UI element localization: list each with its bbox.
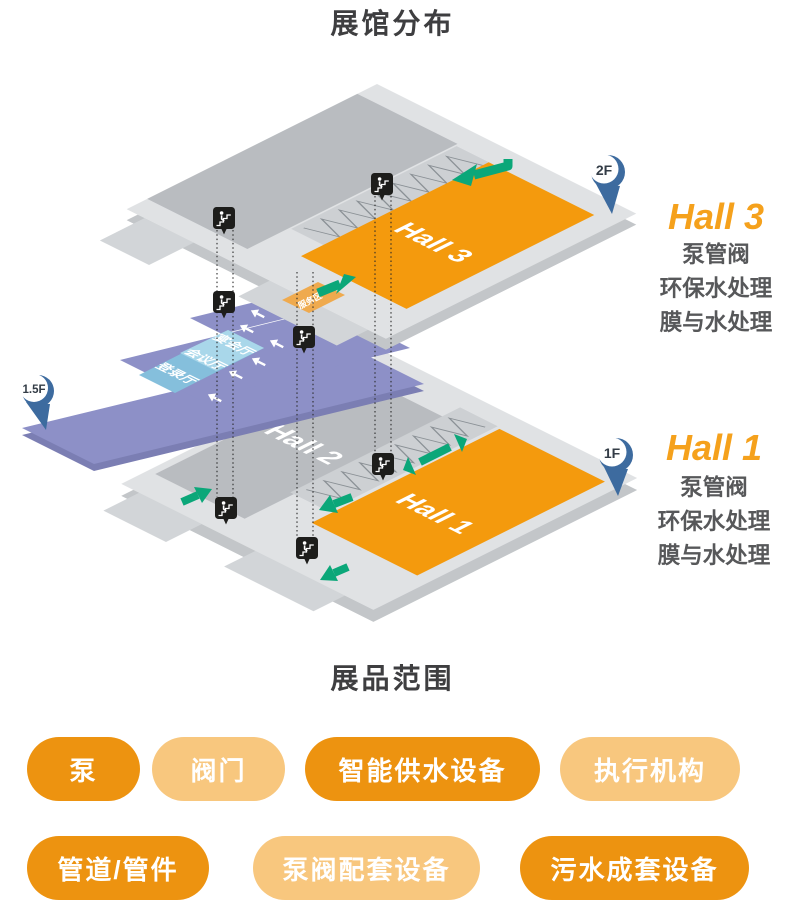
legend-hall3-line2: 环保水处理 [660, 275, 773, 301]
exhibition-map-page: 展馆分布 [0, 0, 785, 913]
products-section-title: 展品范围 [0, 657, 785, 697]
pin-1f-label: 1F [604, 445, 621, 461]
pill-valves: 阀门 [152, 737, 285, 801]
pin-1-5f-label: 1.5F [22, 384, 45, 396]
legend-hall1: Hall 1 泵管阀 环保水处理 膜与水处理 [658, 427, 771, 568]
pill-sewage-equipment: 污水成套设备 [520, 836, 749, 900]
legend-hall3: Hall 3 泵管阀 环保水处理 膜与水处理 [660, 196, 773, 335]
legend-hall3-line3: 膜与水处理 [660, 310, 773, 335]
pin-2f-label: 2F [596, 162, 613, 178]
pill-pipes-fittings: 管道/管件 [27, 836, 209, 900]
pill-actuators: 执行机构 [560, 737, 740, 801]
floor-2f: Hall 3 服务区 [82, 84, 636, 361]
arrow-exit [334, 567, 348, 573]
legend-hall1-name: Hall 1 [666, 427, 762, 468]
pill-pumps: 泵 [27, 737, 140, 801]
legend-hall3-line1: 泵管阀 [682, 241, 750, 267]
pill-smart-water: 智能供水设备 [305, 737, 540, 801]
pill-pump-valve-aux: 泵阀配套设备 [253, 836, 480, 900]
legend-hall1-line2: 环保水处理 [658, 508, 771, 534]
legend-hall1-line3: 膜与水处理 [658, 543, 771, 568]
legend-hall1-line1: 泵管阀 [680, 474, 748, 500]
legend-hall3-name: Hall 3 [668, 196, 764, 237]
